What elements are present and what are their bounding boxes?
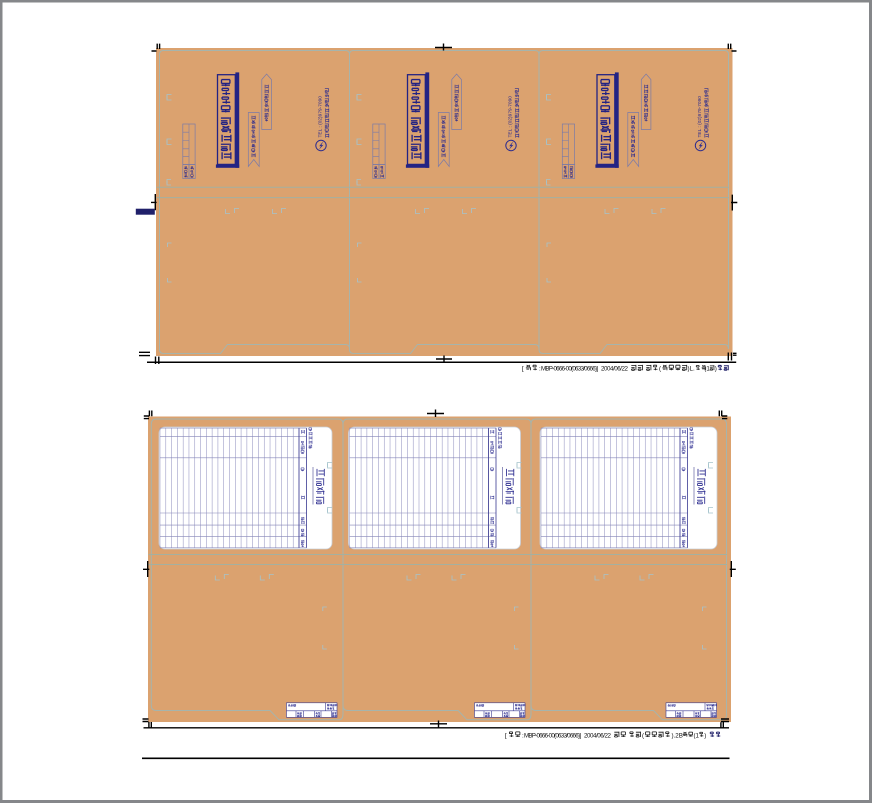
svg-text:)L.: )L.	[688, 365, 696, 372]
svg-text:): )	[715, 365, 717, 372]
svg-text:[: [	[522, 365, 524, 372]
svg-text:): )	[704, 732, 706, 739]
svg-text:2004/06/22: 2004/06/22	[584, 732, 612, 739]
svg-text:(1: (1	[704, 365, 710, 372]
svg-text:: MBP-0666-00(0633/0666)]: : MBP-0666-00(0633/0666)]	[539, 365, 598, 372]
svg-text:).2B: ).2B	[672, 732, 683, 739]
svg-text:: MBP-0666-00(0633/0666)]: : MBP-0666-00(0633/0666)]	[522, 732, 581, 739]
svg-text:2004/06/22: 2004/06/22	[601, 365, 629, 372]
svg-text:[: [	[505, 732, 507, 739]
svg-text:(1: (1	[694, 732, 700, 739]
svg-text:TEL : (02)979-7090: TEL : (02)979-7090	[508, 96, 514, 138]
svg-text:TEL : (02)979-7090: TEL : (02)979-7090	[697, 96, 703, 138]
svg-text:TEL : (02)979-7090: TEL : (02)979-7090	[318, 96, 324, 138]
